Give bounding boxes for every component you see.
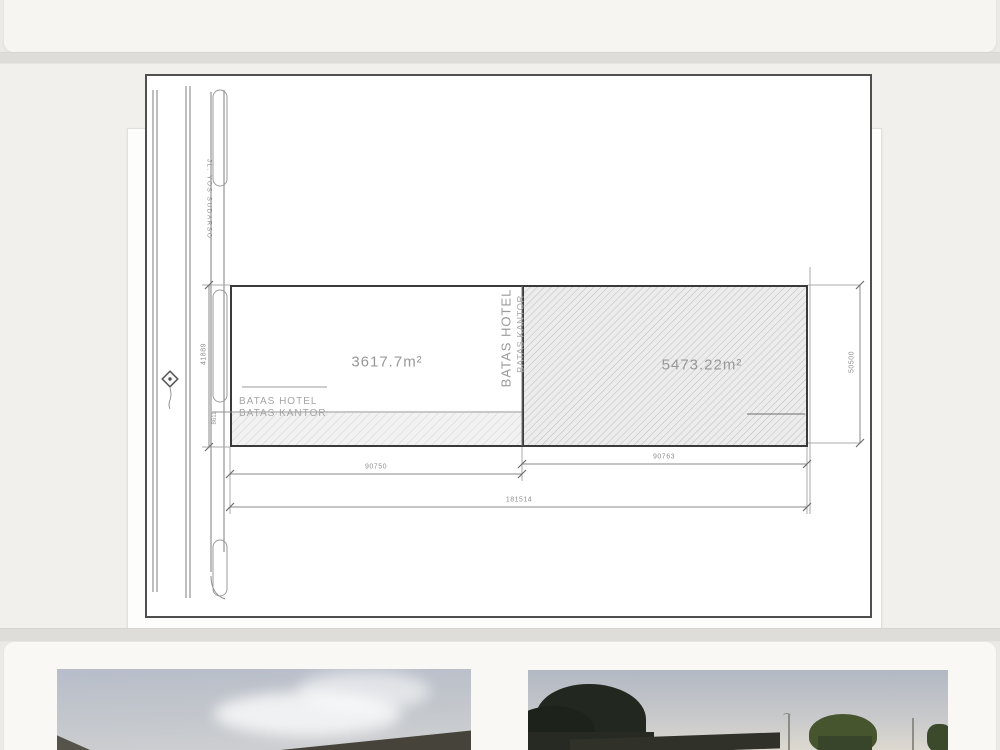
boundary-kantor-label: BATAS KANTOR: [239, 408, 327, 419]
dim-height-right: 50500: [849, 351, 856, 373]
section-divider-bottom: [0, 628, 1000, 642]
green-tree-shape: [818, 736, 873, 750]
parcel-left-area-label: 3617.7m²: [351, 354, 422, 371]
lamp-post: [788, 714, 790, 750]
dim-width-right: 90763: [653, 454, 675, 461]
street-photo-left[interactable]: [57, 669, 471, 750]
parcel-right-area-label: 5473.22m²: [662, 357, 743, 374]
top-card-partial: [4, 0, 996, 52]
dim-width-left: 90750: [365, 464, 387, 471]
street-photo-right[interactable]: [528, 670, 948, 750]
dim-strip-height: 8611: [212, 412, 218, 425]
page: JL. YOS SUDARSO 3617.7m² 5473.22m² BATAS…: [0, 0, 1000, 750]
dim-height-left: 41889: [201, 343, 208, 365]
section-divider-top: [0, 52, 1000, 64]
road-name-label: JL. YOS SUDARSO: [206, 159, 213, 240]
boundary-hotel-label: BATAS HOTEL: [239, 396, 317, 407]
cloud-shape: [297, 671, 429, 712]
dim-width-total: 181514: [506, 497, 532, 504]
bush-shape: [927, 724, 948, 750]
lamp-post-arm: [783, 713, 791, 718]
boundary-hotel-vertical-label: BATAS HOTEL: [499, 289, 514, 388]
boundary-kantor-vertical-label: BATAS KANTOR: [516, 295, 527, 373]
lamp-post: [912, 718, 914, 750]
site-plan-drawing: JL. YOS SUDARSO 3617.7m² 5473.22m² BATAS…: [145, 74, 872, 618]
